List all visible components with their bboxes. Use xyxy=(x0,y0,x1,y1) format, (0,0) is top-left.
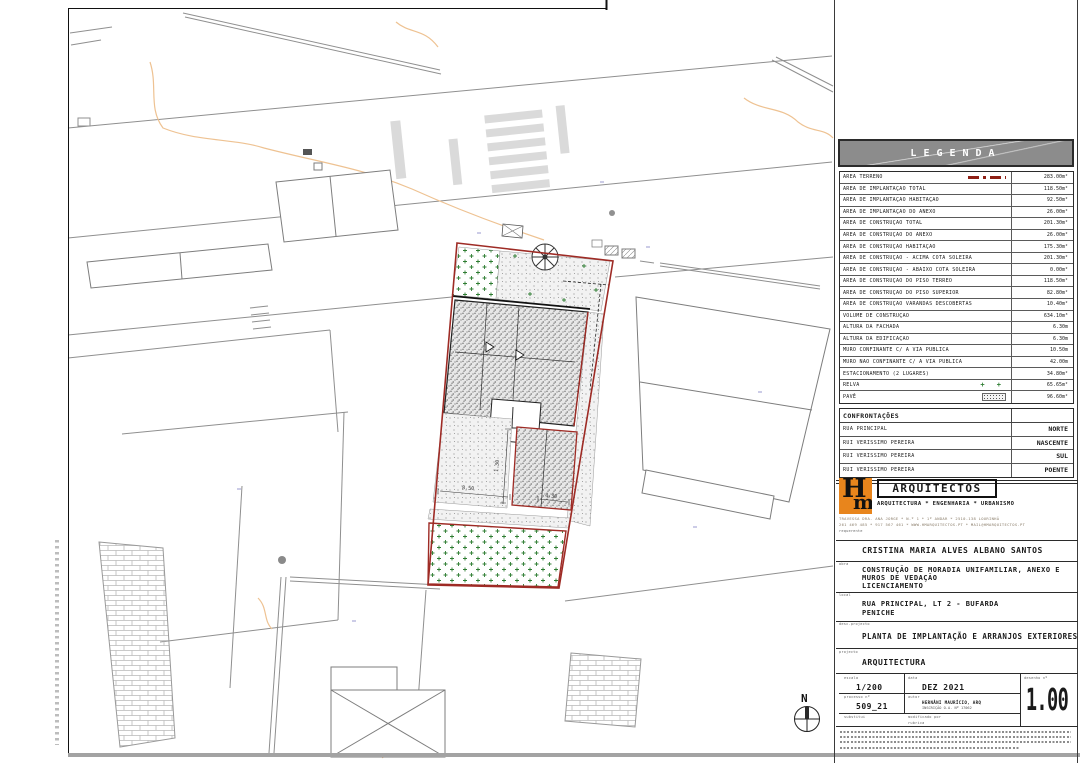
legend-row-label: MURO NÃO CONFINANTE C/ A VIA PÚBLICA xyxy=(843,359,962,365)
legend-row: VOLUME DE CONSTRUÇÃO634.10m³ xyxy=(840,311,1073,323)
legend-row-label: ÁREA DE CONSTRUÇÃO DO PISO SUPERIOR xyxy=(843,290,959,296)
legend-row-value: 0.00m² xyxy=(1011,264,1073,275)
top-lawn xyxy=(452,247,500,299)
firm-tagline: ARQUITECTURA * ENGENHARIA * URBANISMO xyxy=(877,501,1014,507)
legend-row-label: ÁREA DE IMPLANTAÇÃO TOTAL xyxy=(843,186,926,192)
dim-label: 8.50 xyxy=(462,485,475,492)
legend-row: ÁREA DE CONSTRUÇÃO VARANDAS DESCOBERTAS1… xyxy=(840,299,1073,311)
north-compass-icon: N xyxy=(795,692,820,732)
legend-row: ÁREA TERRENO283.00m² xyxy=(840,172,1073,184)
legend-row-value: 34.80m² xyxy=(1011,368,1073,379)
legend-row: ÁREA DE CONSTRUÇÃO - ABAIXO COTA SOLEIRA… xyxy=(840,264,1073,276)
legend-row: ÁREA DE CONSTRUÇÃO HABITAÇÃO175.30m² xyxy=(840,241,1073,253)
divider xyxy=(836,648,1078,649)
legend-row: ALTURA DA FACHADA6.30m xyxy=(840,322,1073,334)
lawn-area xyxy=(428,523,566,587)
divider xyxy=(836,540,1078,541)
legend-row-value: 42.00m xyxy=(1011,357,1073,368)
legend-row-value: 118.50m² xyxy=(1011,276,1073,287)
fineprint-line xyxy=(840,741,1071,743)
legend-row-value: 10.40m² xyxy=(1011,299,1073,310)
legend-row-label-cell: ÁREA DE CONSTRUÇÃO DO PISO SUPERIOR xyxy=(840,290,1011,296)
autor-line1: HERNÂNI MAURÍCIO, ARQ xyxy=(922,700,981,705)
legend-row: PAVÊ96.60m² xyxy=(840,391,1073,403)
legend-row: ÁREA DE IMPLANTAÇÃO HABITAÇÃO92.50m² xyxy=(840,195,1073,207)
legend-row-label-cell: ESTACIONAMENTO (2 LUGARES) xyxy=(840,371,1011,377)
legend-row: ÁREA DE CONSTRUÇÃO DO PISO TÉRREO118.50m… xyxy=(840,276,1073,288)
legend-row-value: 65.65m² xyxy=(1011,380,1073,391)
fineprint-line xyxy=(840,747,1020,749)
data-label: data xyxy=(908,676,917,680)
legend-row-label: ÁREA DE IMPLANTAÇÃO DO ANEXO xyxy=(843,209,936,215)
divider xyxy=(839,713,1020,714)
requerente-label: requerente xyxy=(839,529,863,533)
confrontacao-side: NORTE xyxy=(1011,423,1073,436)
projecto-value: ARQUITECTURA xyxy=(862,658,926,667)
legend-row-label: ÁREA DE IMPLANTAÇÃO HABITAÇÃO xyxy=(843,197,939,203)
legend-row-label: ÁREA DE CONSTRUÇÃO HABITAÇÃO xyxy=(843,244,936,250)
legend-row-label: ÁREA DE CONSTRUÇÃO VARANDAS DESCOBERTAS xyxy=(843,301,972,307)
processo-label: processo nº xyxy=(844,695,870,699)
obra-line1: CONSTRUÇÃO DE MORADIA UNIFAMILIAR, ANEXO… xyxy=(862,566,1060,574)
legend-row-label: ÁREA DE CONSTRUÇÃO - ABAIXO COTA SOLEIRA xyxy=(843,267,975,273)
confrontacao-row: RUA PRINCIPALNORTE xyxy=(840,423,1073,437)
manhole-icon xyxy=(609,210,615,216)
confrontacao-row: RUI VERISSIMO PEREIRANASCENTE xyxy=(840,437,1073,451)
obra-label: obra xyxy=(839,562,848,566)
confrontacoes-table: CONFRONTAÇÕES RUA PRINCIPALNORTERUI VERI… xyxy=(839,408,1074,478)
desc-label: desc.projecto xyxy=(839,622,870,626)
legend-row: ÁREA DE IMPLANTAÇÃO DO ANEXO26.00m² xyxy=(840,207,1073,219)
legend-row: ÁREA DE CONSTRUÇÃO TOTAL201.30m² xyxy=(840,218,1073,230)
relva-swatch-icon: + + xyxy=(980,383,1005,388)
legend-row: ALTURA DA EDIFICAÇÃO6.30m xyxy=(840,334,1073,346)
legend-row-label: ÁREA DE CONSTRUÇÃO - ACIMA COTA SOLEIRA xyxy=(843,255,972,261)
col-separator xyxy=(1020,673,1021,726)
divider xyxy=(836,726,1078,727)
dim-label: 1.30 xyxy=(494,460,501,473)
legend-row-value: 201.30m² xyxy=(1011,218,1073,229)
obra-line2: MUROS DE VEDAÇÃO xyxy=(862,574,937,582)
legend-row-label: ÁREA DE CONSTRUÇÃO DO PISO TÉRREO xyxy=(843,278,952,284)
confrontacao-name: RUI VERISSIMO PEREIRA xyxy=(840,467,1011,473)
firm-address-line1: TRAVESSA DRA. ANA JORGE * N.º 1 * 1º AND… xyxy=(839,516,999,521)
legend-row: ÁREA DE CONSTRUÇÃO - ACIMA COTA SOLEIRA2… xyxy=(840,253,1073,265)
projecto-label: projecto xyxy=(839,650,858,654)
desc-value: PLANTA DE IMPLANTAÇÃO E ARRANJOS EXTERIO… xyxy=(862,632,1078,641)
legend-row-label: ESTACIONAMENTO (2 LUGARES) xyxy=(843,371,929,377)
legend-row-label-cell: ALTURA DA EDIFICAÇÃO xyxy=(840,336,1011,342)
legend-row: ESTACIONAMENTO (2 LUGARES)34.80m² xyxy=(840,368,1073,380)
site-plan-sheet: 8.50 4.30 1.30 N LEGENDA ÁREA TERRENO283… xyxy=(0,0,1080,763)
legend-row-value: 283.00m² xyxy=(1011,172,1073,183)
legend-row: RELVA+ +65.65m² xyxy=(840,380,1073,392)
legend-row: ÁREA DE IMPLANTAÇÃO TOTAL118.50m² xyxy=(840,184,1073,196)
obra-line3: LICENCIAMENTO xyxy=(862,582,923,590)
legend-row-label: VOLUME DE CONSTRUÇÃO xyxy=(843,313,909,319)
legend-row-label: ALTURA DA EDIFICAÇÃO xyxy=(843,336,909,342)
legend-row-label-cell: ALTURA DA FACHADA xyxy=(840,324,1011,330)
firm-logo: H m xyxy=(839,478,872,514)
col-separator xyxy=(904,673,905,693)
legend-table: ÁREA TERRENO283.00m²ÁREA DE IMPLANTAÇÃO … xyxy=(839,171,1074,404)
col-separator xyxy=(904,693,905,713)
legend-row-label-cell: ÁREA DE IMPLANTAÇÃO TOTAL xyxy=(840,186,1011,192)
logo-monogram-m: m xyxy=(853,490,872,514)
substitui-label: substitui xyxy=(844,715,865,719)
pave-swatch-icon xyxy=(982,393,1006,401)
legend-row-label: PAVÊ xyxy=(843,394,856,400)
confrontacao-row: RUI VERISSIMO PEREIRAPOENTE xyxy=(840,464,1073,478)
dim-label: 4.30 xyxy=(545,493,558,500)
data-value: DEZ 2021 xyxy=(922,683,965,692)
divider xyxy=(839,693,1020,694)
legend-row-label-cell: RELVA+ + xyxy=(840,382,1011,388)
confrontacao-side: NASCENTE xyxy=(1011,437,1073,450)
escala-label: escala xyxy=(844,676,858,680)
local-label: local xyxy=(839,593,851,597)
requerente-value: CRISTINA MARIA ALVES ALBANO SANTOS xyxy=(862,546,1043,555)
lot: 8.50 4.30 1.30 xyxy=(428,224,613,588)
fineprint-line xyxy=(840,731,1071,733)
confrontacao-side: POENTE xyxy=(1011,464,1073,478)
legend-row-label: ÁREA DE CONSTRUÇÃO TOTAL xyxy=(843,220,922,226)
confrontacoes-side-col xyxy=(1011,409,1073,422)
confrontacao-name: RUI VERISSIMO PEREIRA xyxy=(840,453,1011,459)
firm-address-line2: 261 469 485 * 917 567 461 * WWW.HMARQUIT… xyxy=(839,522,1025,527)
panel-left-border xyxy=(834,0,835,763)
manhole-icon xyxy=(278,556,286,564)
local-line1: RUA PRINCIPAL, LT 2 - BUFARDA xyxy=(862,600,999,608)
tree-icon xyxy=(532,244,558,270)
sheet-number: 1.00 xyxy=(1030,674,1063,726)
legend-row: ÁREA DE CONSTRUÇÃO DO PISO SUPERIOR82.80… xyxy=(840,287,1073,299)
legend-row: MURO NÃO CONFINANTE C/ A VIA PÚBLICA42.0… xyxy=(840,357,1073,369)
rubrica-label: rubrica xyxy=(908,721,925,725)
firm-name: ARQUITECTOS xyxy=(892,482,981,495)
legend-row-value: 26.00m² xyxy=(1011,230,1073,241)
legend-row-value: 175.30m² xyxy=(1011,241,1073,252)
legend-row-value: 118.50m² xyxy=(1011,184,1073,195)
confrontacoes-title: CONFRONTAÇÕES xyxy=(840,412,1011,420)
legend-row-value: 92.50m² xyxy=(1011,195,1073,206)
divider xyxy=(836,561,1078,562)
modificado-label: modificado por xyxy=(908,715,941,719)
title-block-panel: LEGENDA ÁREA TERRENO283.00m²ÁREA DE IMPL… xyxy=(836,0,1078,763)
legend-row-label: ALTURA DA FACHADA xyxy=(843,324,899,330)
divider xyxy=(836,621,1078,622)
legend-row-label: RELVA xyxy=(843,382,860,388)
legend-row-label-cell: ÁREA DE CONSTRUÇÃO VARANDAS DESCOBERTAS xyxy=(840,301,1011,307)
legend-row: MURO CONFINANTE C/ A VIA PÚBLICA10.50m xyxy=(840,345,1073,357)
legend-row-label-cell: ÁREA DE CONSTRUÇÃO HABITAÇÃO xyxy=(840,244,1011,250)
legend-row-label-cell: ÁREA DE IMPLANTAÇÃO DO ANEXO xyxy=(840,209,1011,215)
legend-row-value: 6.30m xyxy=(1011,334,1073,345)
legend-row-label: ÁREA TERRENO xyxy=(843,174,883,180)
legend-row-value: 96.60m² xyxy=(1011,391,1073,403)
legend-row-value: 26.00m² xyxy=(1011,207,1073,218)
confrontacao-name: RUI VERISSIMO PEREIRA xyxy=(840,440,1011,446)
escala-value: 1/200 xyxy=(856,683,883,692)
autor-line2: INSCRIÇÃO O.A. Nº 17062 xyxy=(922,706,972,710)
divider xyxy=(836,592,1078,593)
legend-row-label-cell: MURO NÃO CONFINANTE C/ A VIA PÚBLICA xyxy=(840,359,1011,365)
sheet-filepath-text xyxy=(55,540,59,745)
legend-row-label-cell: ÁREA DE CONSTRUÇÃO - ACIMA COTA SOLEIRA xyxy=(840,255,1011,261)
legend-title-text: LEGENDA xyxy=(910,148,1001,159)
crosswalk xyxy=(390,103,573,203)
north-label: N xyxy=(801,692,808,705)
confrontacao-name: RUA PRINCIPAL xyxy=(840,426,1011,432)
legend-row-label: MURO CONFINANTE C/ A VIA PÚBLICA xyxy=(843,347,949,353)
autor-label: autor xyxy=(908,695,920,699)
confrontacoes-header: CONFRONTAÇÕES xyxy=(840,409,1073,423)
legend-row-label-cell: PAVÊ xyxy=(840,393,1011,401)
confrontacoes-rows: RUA PRINCIPALNORTERUI VERISSIMO PEREIRAN… xyxy=(840,423,1073,477)
fineprint-line xyxy=(840,736,1071,738)
legend-row-label-cell: ÁREA DE CONSTRUÇÃO TOTAL xyxy=(840,220,1011,226)
legend-row-value: 10.50m xyxy=(1011,345,1073,356)
legend-row-value: 634.10m³ xyxy=(1011,311,1073,322)
legend-row-label-cell: ÁREA DE CONSTRUÇÃO DO PISO TÉRREO xyxy=(840,278,1011,284)
legend-row-value: 201.30m² xyxy=(1011,253,1073,264)
legend-row-label-cell: ÁREA TERRENO xyxy=(840,174,1011,180)
legend-row-label-cell: ÁREA DE CONSTRUÇÃO - ABAIXO COTA SOLEIRA xyxy=(840,267,1011,273)
confrontacao-row: RUI VERISSIMO PEREIRASUL xyxy=(840,450,1073,464)
processo-value: 509_21 xyxy=(856,702,888,711)
firm-name-box: ARQUITECTOS xyxy=(877,479,997,498)
confrontacao-side: SUL xyxy=(1011,450,1073,463)
legend-row-label-cell: ÁREA DE IMPLANTAÇÃO HABITAÇÃO xyxy=(840,197,1011,203)
legend-title: LEGENDA xyxy=(838,139,1074,167)
legend-row: ÁREA DE CONSTRUÇÃO DO ANEXO26.00m² xyxy=(840,230,1073,242)
legend-row-value: 6.30m xyxy=(1011,322,1073,333)
legend-row-value: 82.80m² xyxy=(1011,287,1073,298)
legend-row-label-cell: VOLUME DE CONSTRUÇÃO xyxy=(840,313,1011,319)
local-line2: PENICHE xyxy=(862,609,895,617)
terrain-boundary-swatch-icon xyxy=(968,176,1006,179)
legend-row-label-cell: ÁREA DE CONSTRUÇÃO DO ANEXO xyxy=(840,232,1011,238)
legend-row-label: ÁREA DE CONSTRUÇÃO DO ANEXO xyxy=(843,232,932,238)
legend-row-label-cell: MURO CONFINANTE C/ A VIA PÚBLICA xyxy=(840,347,1011,353)
